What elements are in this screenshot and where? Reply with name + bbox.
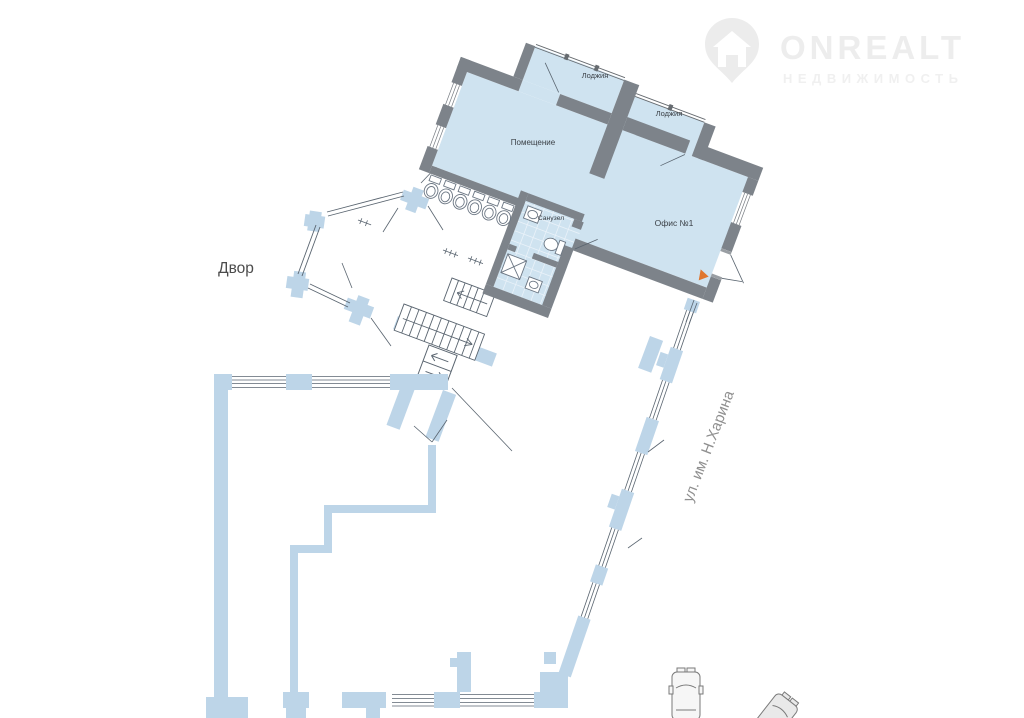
street-facade [551,295,700,677]
car-icon-1 [669,668,703,718]
watermark-brand: ONREALT [780,29,965,66]
onrealt-watermark: ONREALT НЕДВИЖИМОСТЬ [705,18,965,86]
courtyard-label: Двор [218,260,254,277]
bathroom-label: Санузел [538,215,565,222]
corridor-piers [638,336,663,373]
street-label: ул. им. Н.Харина [680,388,738,505]
loggia2-label: Лоджия [656,109,683,118]
floor-plan-page: ONREALT НЕДВИЖИМОСТЬ [0,0,1024,718]
house-door [726,55,738,67]
watermark-subtitle: НЕДВИЖИМОСТЬ [783,71,963,86]
lower-wing [206,374,568,718]
radiator-symbols [357,217,509,274]
floor-plan-canvas: ONREALT НЕДВИЖИМОСТЬ [0,0,1024,718]
courtyard-windows [298,192,404,307]
lower-door-swings [414,388,512,451]
car-icon-2 [751,689,802,718]
office-label: Офис №1 [655,218,694,228]
window-band-bottom [392,695,534,707]
loggia1-label: Лоджия [582,71,609,80]
main-room-label: Помещение [511,138,556,147]
cars [669,668,802,718]
